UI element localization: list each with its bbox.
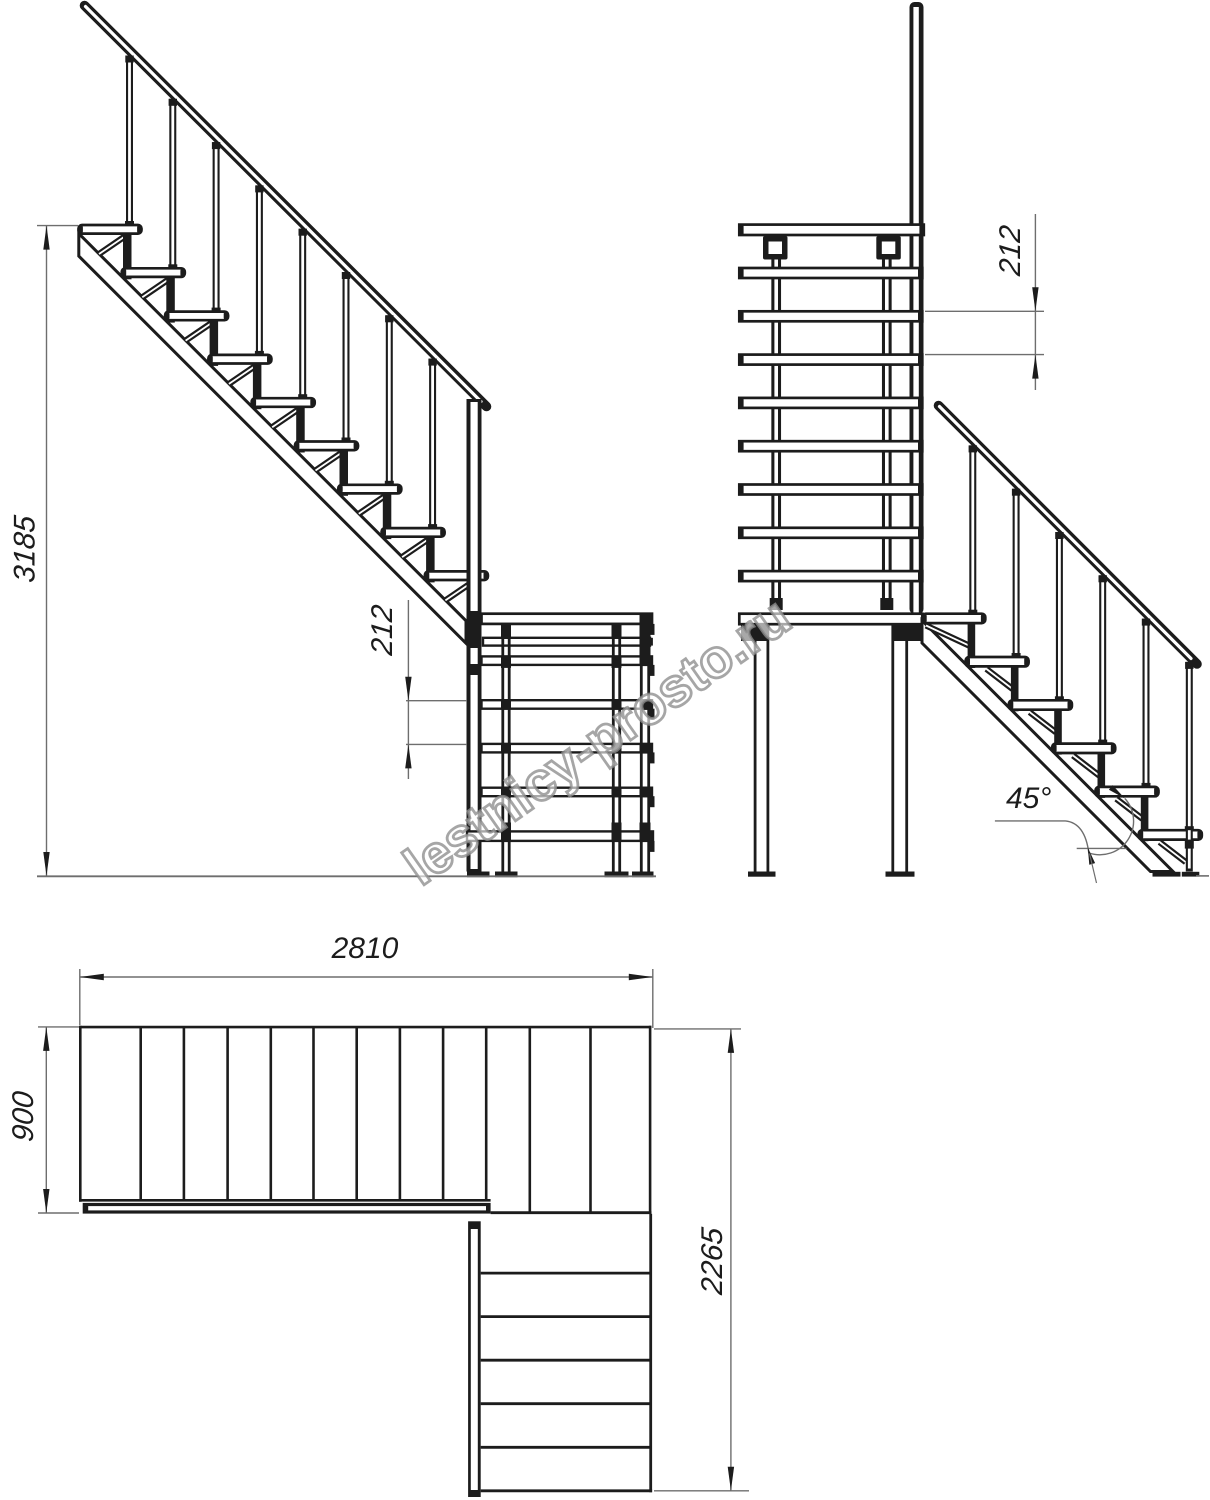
svg-text:3185: 3185 <box>9 514 42 584</box>
svg-text:212: 212 <box>994 223 1027 278</box>
svg-text:212: 212 <box>366 603 399 658</box>
svg-text:900: 900 <box>7 1089 40 1143</box>
svg-text:45°: 45° <box>1006 782 1051 815</box>
svg-text:2265: 2265 <box>696 1226 729 1297</box>
svg-text:2810: 2810 <box>331 932 399 965</box>
